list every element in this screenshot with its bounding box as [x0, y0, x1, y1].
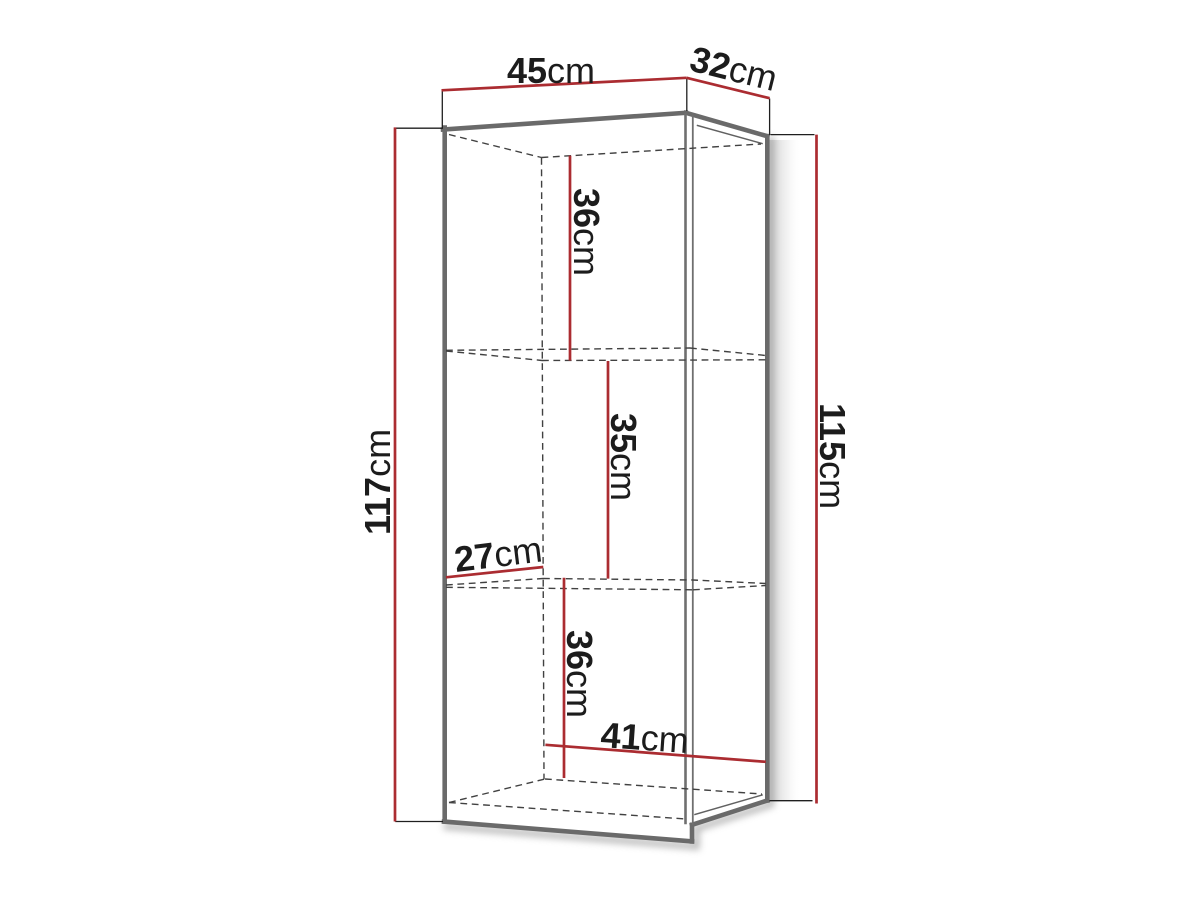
svg-text:36cm: 36cm	[566, 188, 607, 276]
svg-text:36cm: 36cm	[559, 630, 600, 718]
svg-text:115cm: 115cm	[812, 403, 853, 509]
svg-text:45cm: 45cm	[507, 50, 595, 91]
svg-text:35cm: 35cm	[603, 413, 644, 501]
svg-text:117cm: 117cm	[357, 429, 398, 535]
svg-text:41cm: 41cm	[599, 714, 690, 761]
